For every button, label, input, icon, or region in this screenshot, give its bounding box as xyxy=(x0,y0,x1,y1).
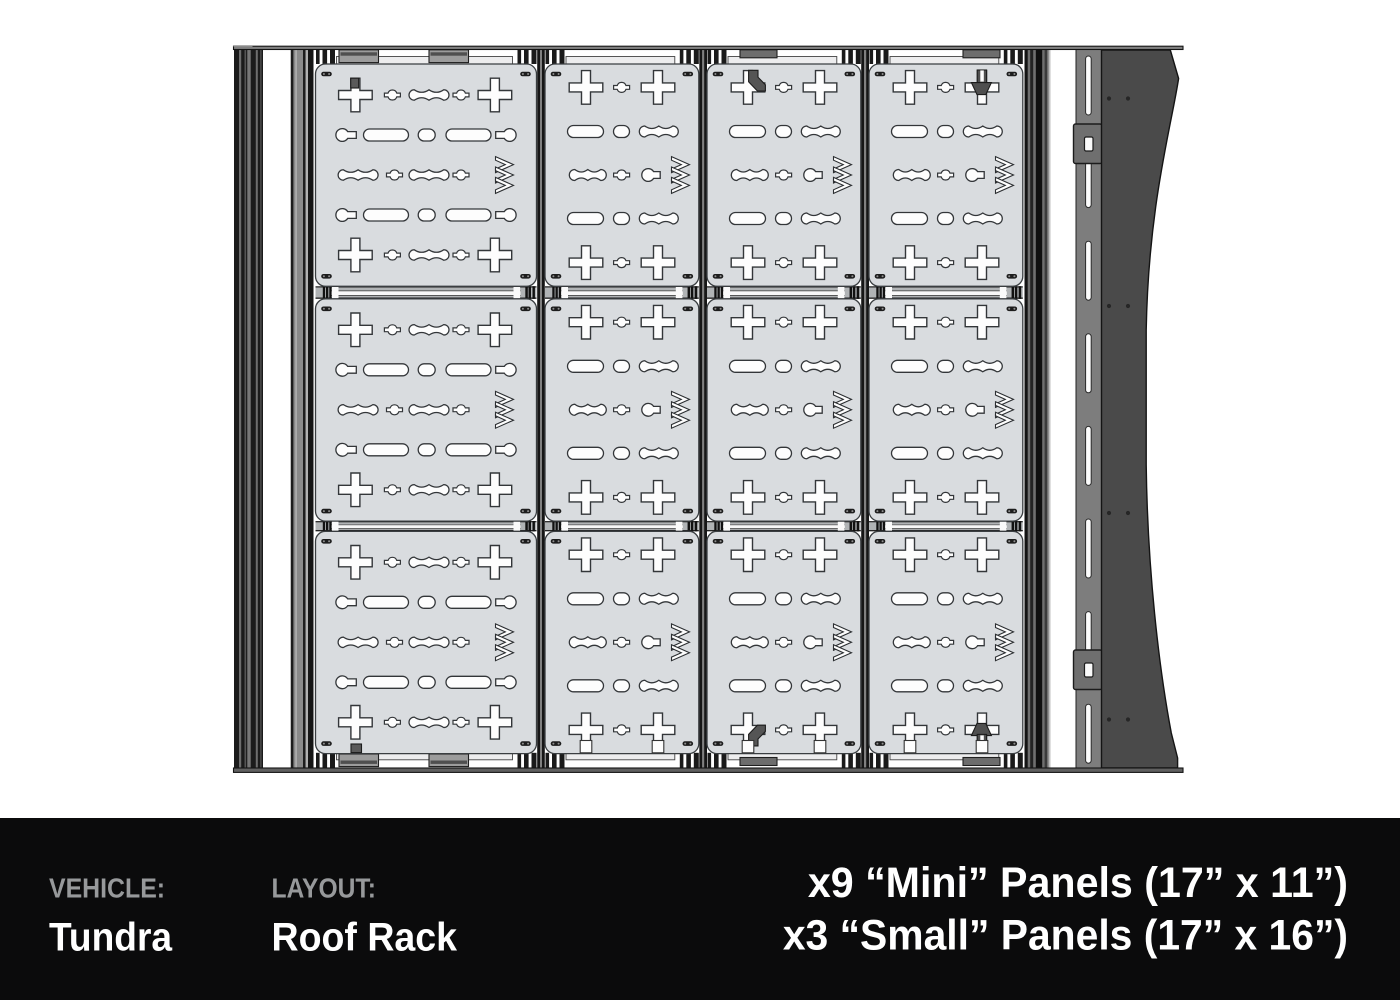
svg-text:LAYOUT:: LAYOUT: xyxy=(272,872,376,904)
svg-text:VEHICLE:: VEHICLE: xyxy=(49,872,165,904)
svg-text:x3 “Small” Panels (17” x 16”): x3 “Small” Panels (17” x 16”) xyxy=(783,911,1348,959)
svg-text:Roof Rack: Roof Rack xyxy=(272,916,458,960)
svg-text:Tundra: Tundra xyxy=(49,915,173,959)
svg-text:x9 “Mini” Panels (17” x 11”): x9 “Mini” Panels (17” x 11”) xyxy=(808,858,1348,906)
